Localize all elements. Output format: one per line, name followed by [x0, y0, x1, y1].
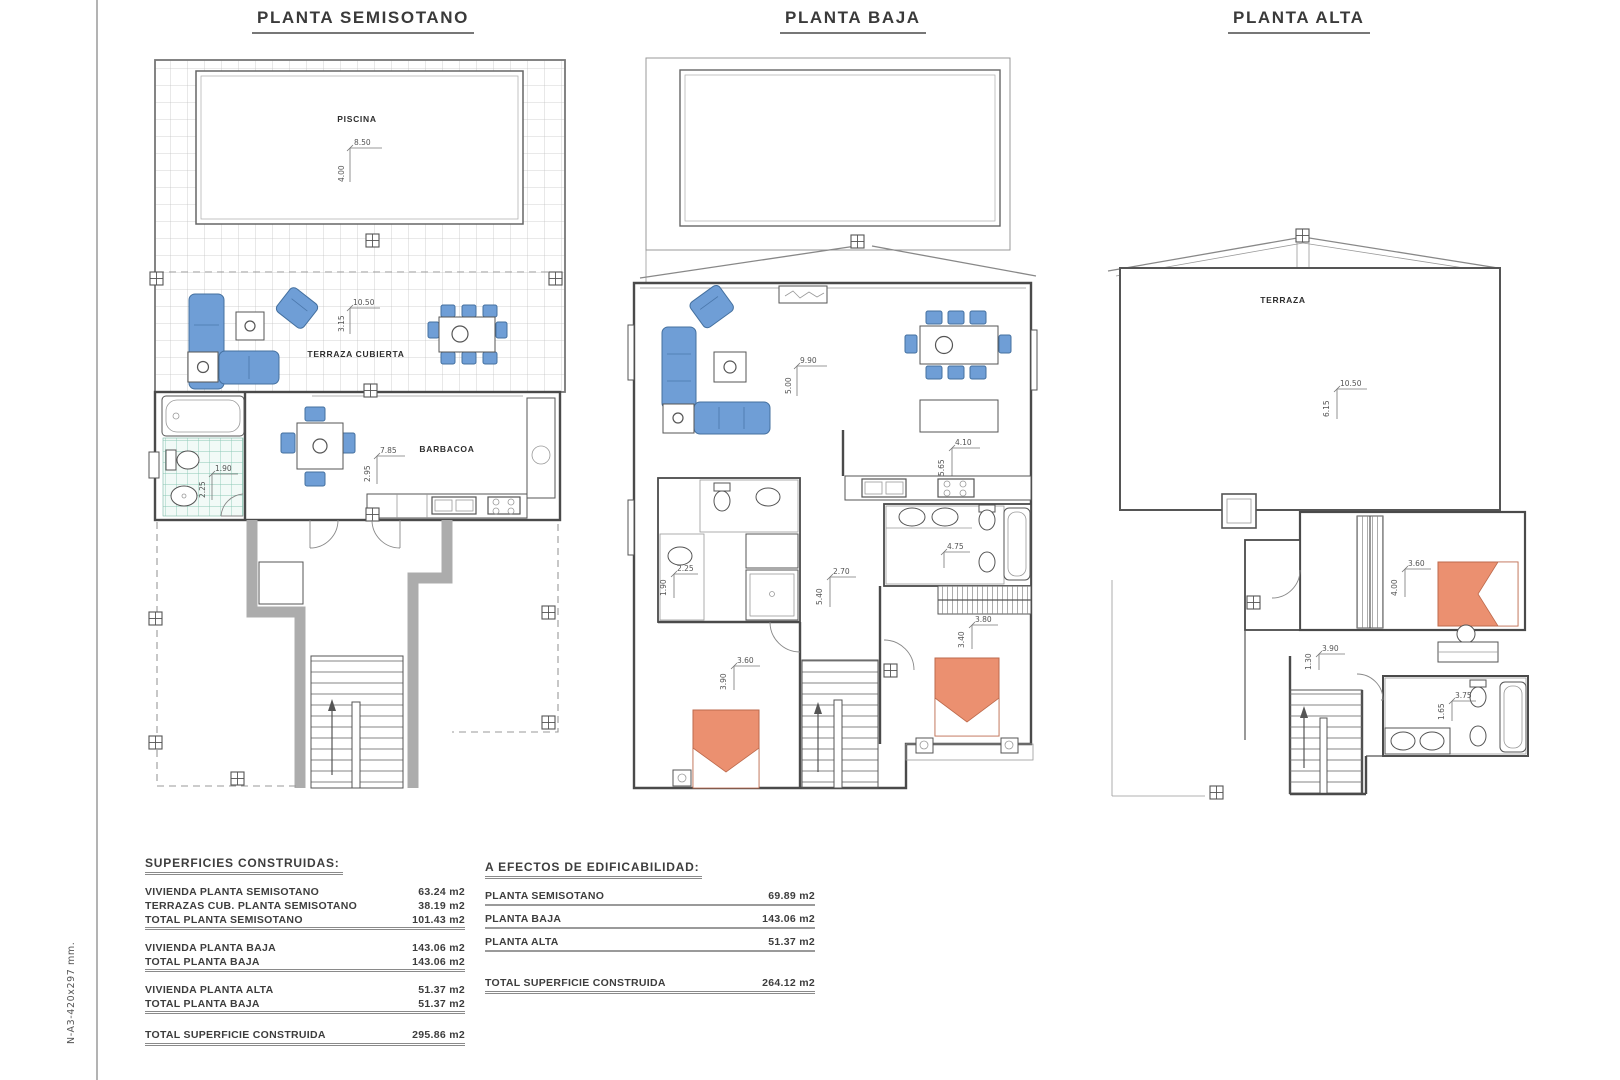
side-table [236, 312, 264, 340]
dim-bed1-w: 3.60 [737, 656, 754, 665]
table-edificabilidad: A EFECTOS DE EDIFICABILIDAD: PLANTA SEMI… [485, 858, 815, 1000]
drawing-sheet: N-A3-420x297 mm. PLANTA SEMISOTANO PLANT… [0, 0, 1620, 1080]
dining-table [439, 317, 495, 352]
pool [196, 71, 523, 224]
chair [428, 322, 439, 338]
chair [462, 352, 476, 364]
shower [746, 570, 798, 620]
row-label: VIVIENDA PLANTA ALTA [145, 984, 274, 996]
dim-terrace-h: 6.15 [1322, 400, 1331, 417]
sink [756, 488, 780, 506]
row-value: 69.89 m2 [768, 890, 815, 902]
table-row-total: TOTAL PLANTA SEMISOTANO101.43 m2 [145, 913, 465, 930]
row-label: PLANTA SEMISOTANO [485, 890, 604, 902]
row-value: 51.37 m2 [418, 984, 465, 996]
landing [1245, 540, 1300, 630]
label-barbacoa: BARBACOA [419, 444, 474, 454]
chair [483, 352, 497, 364]
nightstand [1001, 738, 1018, 753]
toilet [1470, 687, 1486, 707]
chair [948, 366, 964, 379]
sideboard [920, 400, 998, 432]
chair [305, 472, 325, 486]
row-label: TOTAL SUPERFICIE CONSTRUIDA [485, 977, 666, 989]
row-value: 143.06 m2 [762, 913, 815, 925]
row-value: 63.24 m2 [418, 886, 465, 898]
chair [496, 322, 507, 338]
dim-bath-h: 2.25 [198, 481, 207, 498]
dim-bath2-w: 4.75 [947, 542, 964, 551]
row-label: TOTAL PLANTA BAJA [145, 956, 260, 968]
dim-kitchen-h: 5.65 [937, 459, 946, 476]
dim-bath-h: 1.65 [1437, 703, 1446, 720]
sofa [694, 402, 770, 434]
dim-barbacoa-h: 2.95 [363, 465, 372, 482]
dim-bed2-h: 3.40 [957, 631, 966, 648]
chair [441, 305, 455, 317]
toilet [166, 450, 176, 470]
table-title: SUPERFICIES CONSTRUIDAS: [145, 856, 343, 875]
row-label: PLANTA BAJA [485, 913, 561, 925]
terrace [1120, 268, 1500, 510]
dim-barbacoa-w: 7.85 [380, 446, 397, 455]
row-value: 295.86 m2 [412, 1029, 465, 1041]
dim-bath1-w: 2.25 [677, 564, 694, 573]
plan-baja: 9.90 5.00 4.10 5.65 [628, 58, 1037, 788]
label-terraza-cubierta: TERRAZA CUBIERTA [307, 349, 404, 359]
stool [1457, 625, 1475, 643]
dim-bath-w: 1.90 [215, 464, 232, 473]
sink [1420, 732, 1444, 750]
table-row-total: TOTAL PLANTA BAJA143.06 m2 [145, 955, 465, 972]
row-value: 143.06 m2 [412, 942, 465, 954]
wall [252, 520, 300, 788]
chair [441, 352, 455, 364]
row-value: 143.06 m2 [412, 956, 465, 968]
table-superficies-construidas: SUPERFICIES CONSTRUIDAS: VIVIENDA PLANTA… [145, 854, 465, 1046]
table-grand-total: TOTAL SUPERFICIE CONSTRUIDA295.86 m2 [145, 1028, 465, 1046]
plan-semisotano: PISCINA 8.50 4.00 TERRAZA CUBIERTA [149, 60, 565, 788]
dim-bed2-w: 3.80 [975, 615, 992, 624]
dim-bath1-h: 1.90 [659, 579, 668, 596]
dim-hall-h: 5.40 [815, 588, 824, 605]
row-label: TOTAL PLANTA BAJA [145, 998, 260, 1010]
sink [171, 486, 197, 506]
closet [259, 562, 303, 604]
dim-hall-h: 1.30 [1304, 653, 1313, 670]
dim-hall-w: 3.90 [1322, 644, 1339, 653]
chair [970, 311, 986, 324]
table-row: VIVIENDA PLANTA BAJA143.06 m2 [145, 941, 465, 955]
table-row: PLANTA BAJA143.06 m2 [485, 912, 815, 929]
dim-living-h: 5.00 [784, 377, 793, 394]
chair [926, 311, 942, 324]
row-value: 38.19 m2 [418, 900, 465, 912]
chair [305, 407, 325, 421]
table-row: VIVIENDA PLANTA SEMISOTANO63.24 m2 [145, 885, 465, 899]
table-title: A EFECTOS DE EDIFICABILIDAD: [485, 860, 702, 879]
row-label: PLANTA ALTA [485, 936, 559, 948]
dim-kitchen-w: 4.10 [955, 438, 972, 447]
dim-living-w: 9.90 [800, 356, 817, 365]
sink [668, 547, 692, 565]
toilet [979, 510, 995, 530]
sink [932, 508, 958, 526]
row-label: TOTAL PLANTA SEMISOTANO [145, 914, 303, 926]
dim-terrace-w: 10.50 [1340, 379, 1362, 388]
fireplace [779, 286, 827, 303]
bidet [979, 552, 995, 572]
chair [999, 335, 1011, 353]
label-piscina: PISCINA [337, 114, 376, 124]
chair [483, 305, 497, 317]
row-value: 51.37 m2 [768, 936, 815, 948]
side-table [188, 352, 218, 382]
wall [413, 520, 447, 788]
chair [462, 305, 476, 317]
dim-bed1-h: 3.90 [719, 673, 728, 690]
chair [926, 366, 942, 379]
row-label: TERRAZAS CUB. PLANTA SEMISOTANO [145, 900, 357, 912]
row-value: 101.43 m2 [412, 914, 465, 926]
dining-table [920, 326, 998, 364]
dim-pool-w: 8.50 [354, 138, 371, 147]
dim-terrace-w: 10.50 [353, 298, 375, 307]
bidet [1470, 726, 1486, 746]
dim-bath-w: 3.75 [1455, 691, 1472, 700]
table-row: TERRAZAS CUB. PLANTA SEMISOTANO38.19 m2 [145, 899, 465, 913]
table-row-total: TOTAL PLANTA BAJA51.37 m2 [145, 997, 465, 1014]
side-table [663, 404, 694, 433]
dim-terrace-h: 3.15 [337, 315, 346, 332]
table [297, 423, 343, 469]
plan-alta: TERRAZA 10.50 6.15 3.60 4.00 [1108, 229, 1528, 799]
chair [948, 311, 964, 324]
toilet [714, 491, 730, 511]
nightstand [916, 738, 933, 753]
sink [899, 508, 925, 526]
sink [1391, 732, 1415, 750]
row-value: 51.37 m2 [418, 998, 465, 1010]
row-label: VIVIENDA PLANTA SEMISOTANO [145, 886, 319, 898]
side-table [714, 352, 746, 382]
chair [905, 335, 917, 353]
dim-pool-h: 4.00 [337, 165, 346, 182]
pool [680, 70, 1000, 226]
nightstand [673, 770, 691, 786]
dim-hall-w: 2.70 [833, 567, 850, 576]
label-terraza: TERRAZA [1260, 295, 1306, 305]
row-label: TOTAL SUPERFICIE CONSTRUIDA [145, 1029, 326, 1041]
chair [281, 433, 295, 453]
row-label: VIVIENDA PLANTA BAJA [145, 942, 276, 954]
dim-bed-h: 4.00 [1390, 579, 1399, 596]
chair [970, 366, 986, 379]
table-row: VIVIENDA PLANTA ALTA51.37 m2 [145, 983, 465, 997]
dim-bed-w: 3.60 [1408, 559, 1425, 568]
table-grand-total: TOTAL SUPERFICIE CONSTRUIDA264.12 m2 [485, 976, 815, 994]
table-row: PLANTA SEMISOTANO69.89 m2 [485, 889, 815, 906]
row-value: 264.12 m2 [762, 977, 815, 989]
table-row: PLANTA ALTA51.37 m2 [485, 935, 815, 952]
sofa [662, 327, 696, 409]
bathtub [162, 396, 244, 436]
kitchen-counter [527, 398, 555, 498]
